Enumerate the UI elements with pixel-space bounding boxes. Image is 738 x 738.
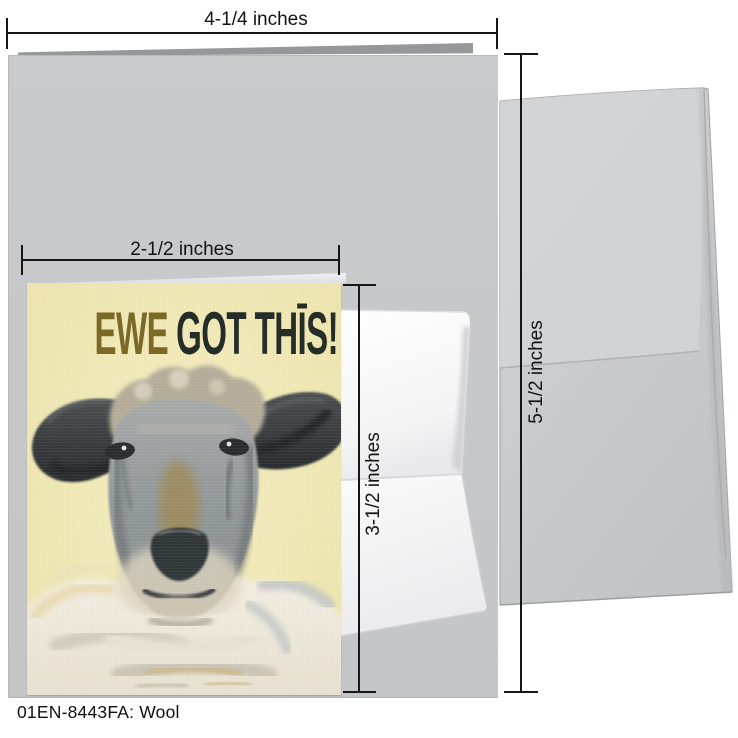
- notecard-front: EWEGOT THĪS!: [27, 283, 341, 695]
- card-title-rest: GOT THĪS!: [176, 300, 338, 368]
- card-height-line: [520, 53, 522, 693]
- notecard-width-tick-left: [21, 245, 23, 275]
- product-sku: 01EN-8443FA:: [17, 702, 134, 722]
- notecard-height-label: 3-1/2 inches: [363, 419, 385, 549]
- card-height-tick-top: [504, 53, 538, 55]
- notecard-width-line: [21, 259, 340, 261]
- card-width-label: 4-1/4 inches: [204, 9, 308, 31]
- notecard-height-line: [358, 284, 360, 693]
- notecard-height-tick-top: [343, 284, 376, 286]
- card-width-tick-left: [6, 18, 8, 49]
- card-title: EWEGOT THĪS!: [95, 304, 274, 364]
- notecard-height-tick-bottom: [343, 691, 376, 693]
- card-width-tick-right: [496, 18, 498, 49]
- notecard-width-label: 2-1/2 inches: [130, 239, 234, 261]
- notecard-width-tick-right: [338, 245, 340, 275]
- card-height-tick-bottom: [504, 691, 538, 693]
- card-height-label: 5-1/2 inches: [526, 307, 548, 437]
- product-caption: 01EN-8443FA: Wool: [17, 702, 180, 723]
- product-name: Wool: [139, 702, 179, 722]
- product-mockup: EWEGOT THĪS!: [0, 0, 738, 738]
- card-width-line: [6, 32, 498, 34]
- card-title-ewe: EWE: [95, 300, 169, 368]
